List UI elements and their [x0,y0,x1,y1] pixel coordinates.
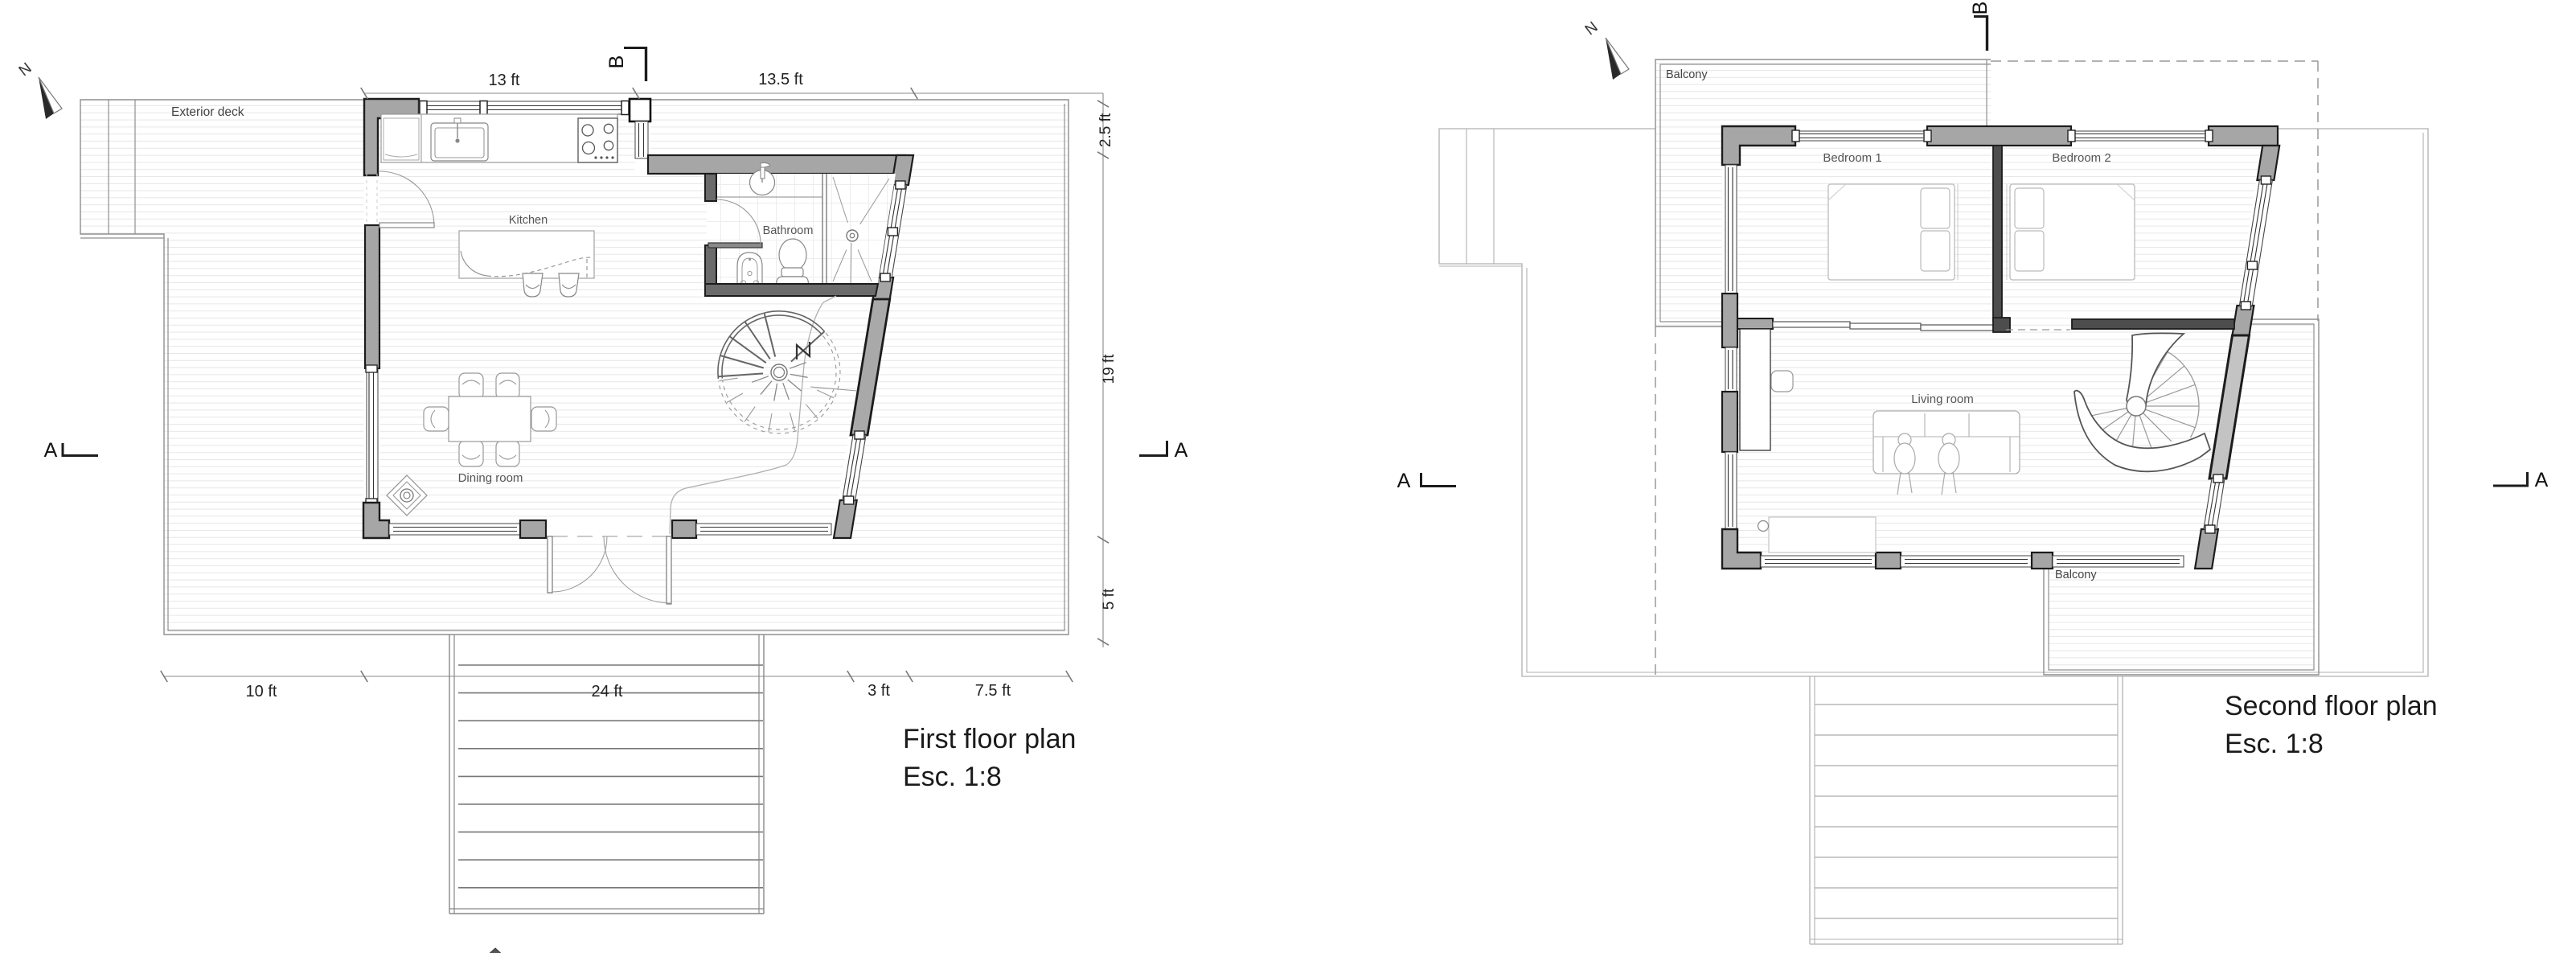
svg-text:13 ft: 13 ft [489,72,520,89]
svg-text:Kitchen: Kitchen [509,214,548,227]
svg-text:19 ft: 19 ft [1101,354,1118,384]
svg-text:Bedroom 1: Bedroom 1 [1823,151,1881,165]
svg-text:Dining room: Dining room [458,471,523,485]
svg-text:13.5 ft: 13.5 ft [758,71,803,88]
svg-text:A: A [1175,439,1188,462]
svg-text:Esc. 1:8: Esc. 1:8 [903,762,1002,792]
svg-text:B: B [1969,2,1991,15]
svg-text:Bathroom: Bathroom [763,224,814,237]
svg-text:Exterior deck: Exterior deck [171,105,244,119]
svg-text:Second floor plan: Second floor plan [2225,691,2438,721]
svg-text:Balcony: Balcony [1666,68,1708,81]
svg-text:A: A [1397,470,1411,492]
svg-text:3 ft: 3 ft [868,682,890,700]
svg-text:5 ft: 5 ft [1101,588,1118,610]
svg-text:10 ft: 10 ft [246,683,277,700]
svg-text:First floor plan: First floor plan [903,724,1076,754]
svg-text:A: A [2535,469,2549,491]
svg-text:Living room: Living room [1911,392,1974,406]
svg-text:7.5 ft: 7.5 ft [975,682,1011,700]
svg-text:Esc. 1:8: Esc. 1:8 [2225,729,2324,759]
svg-text:Balcony: Balcony [2055,569,2097,581]
svg-text:24 ft: 24 ft [592,683,623,700]
svg-text:2.5 ft: 2.5 ft [1097,113,1114,147]
svg-text:A: A [44,439,58,462]
svg-text:B: B [605,55,628,69]
svg-text:Bedroom 2: Bedroom 2 [2052,151,2110,165]
